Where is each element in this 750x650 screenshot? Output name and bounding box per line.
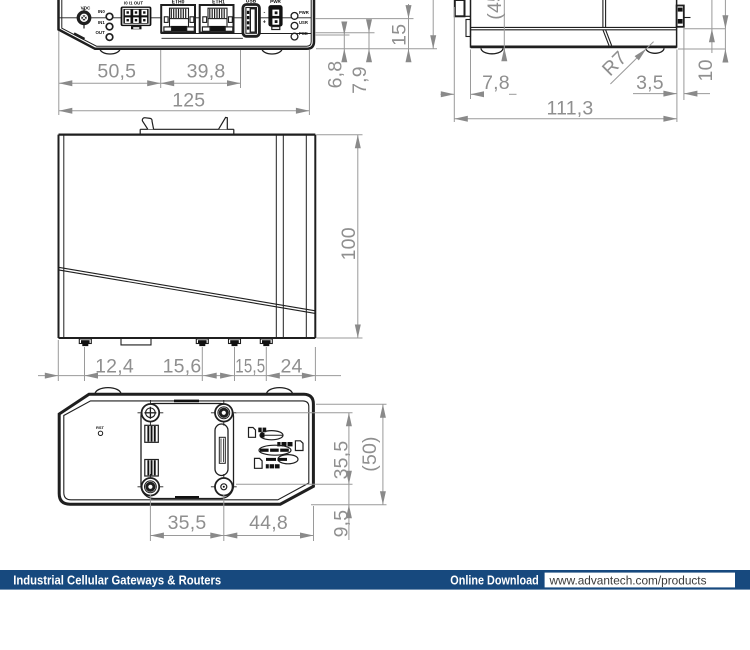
svg-text:12,4: 12,4: [95, 355, 134, 377]
svg-text:44,8: 44,8: [249, 512, 288, 534]
svg-text:(50): (50): [359, 436, 381, 471]
svg-text:7,9: 7,9: [349, 66, 371, 94]
svg-text:6,8: 6,8: [324, 61, 346, 89]
svg-text:IN0: IN0: [98, 9, 105, 14]
svg-text:7,8: 7,8: [482, 72, 510, 94]
svg-text:3,5: 3,5: [636, 72, 664, 94]
svg-text:(45): (45): [484, 0, 506, 20]
svg-text:15,5: 15,5: [235, 355, 265, 377]
svg-text:15,6: 15,6: [163, 355, 202, 377]
svg-text:15: 15: [389, 24, 411, 46]
svg-text:VDC: VDC: [81, 6, 91, 11]
svg-text:24: 24: [280, 355, 302, 377]
svg-text:USR: USR: [299, 20, 308, 25]
svg-text:Industrial Cellular Gateways &: Industrial Cellular Gateways & Routers: [13, 572, 221, 587]
svg-text:PWR: PWR: [299, 10, 309, 15]
svg-text:10: 10: [695, 59, 717, 81]
svg-text:35,5: 35,5: [168, 512, 207, 534]
svg-text:RST: RST: [96, 425, 105, 430]
svg-text:www.advantech.com/products: www.advantech.com/products: [549, 573, 707, 587]
svg-text:+: +: [263, 19, 266, 25]
svg-text:I0 I1 OUT: I0 I1 OUT: [124, 0, 143, 5]
svg-text:100: 100: [338, 227, 360, 260]
svg-text:39,8: 39,8: [187, 61, 226, 83]
svg-text:-: -: [264, 9, 266, 15]
svg-text:35,5: 35,5: [330, 441, 352, 480]
svg-text:OUT: OUT: [96, 30, 106, 35]
svg-text:9,5: 9,5: [330, 510, 352, 538]
svg-text:111,3: 111,3: [547, 97, 594, 119]
svg-text:PWR: PWR: [270, 0, 281, 4]
svg-text:50,5: 50,5: [97, 61, 136, 83]
svg-text:Online Download: Online Download: [450, 572, 539, 587]
svg-text:POE: POE: [299, 31, 308, 36]
svg-text:IN1: IN1: [98, 20, 105, 25]
svg-text:125: 125: [172, 89, 205, 111]
